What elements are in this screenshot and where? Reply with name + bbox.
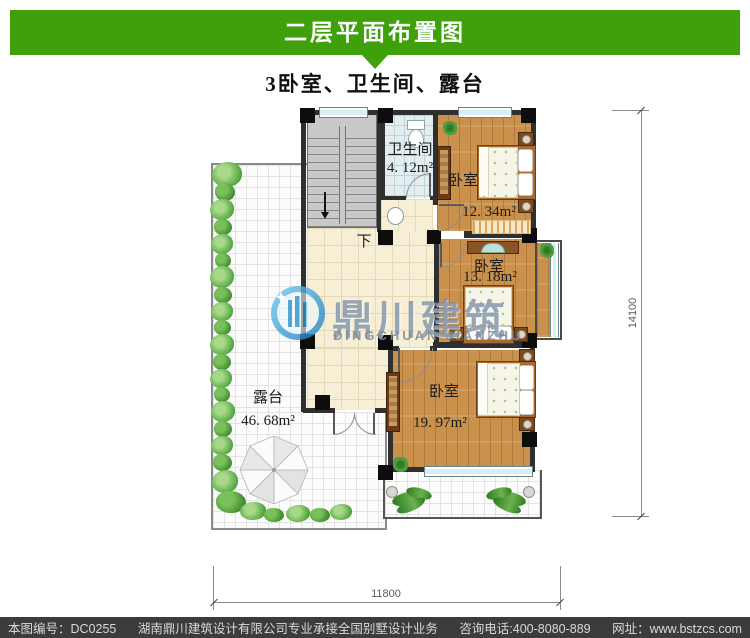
plant-icon xyxy=(310,508,330,522)
plant-icon xyxy=(210,369,232,388)
plant-icon xyxy=(330,504,352,520)
column xyxy=(427,230,441,244)
bedroom-bottom-label: 卧室 xyxy=(421,380,467,401)
dresser xyxy=(467,241,519,254)
plant-icon xyxy=(214,320,231,335)
terrace-door-leaf-right xyxy=(373,413,375,434)
column xyxy=(300,108,315,123)
stair-stringer xyxy=(339,126,346,224)
plant-icon xyxy=(210,334,234,355)
bedroom-top-label: 卧室 xyxy=(440,169,486,190)
bed-sheet xyxy=(478,363,488,414)
dimension-ext-bottom xyxy=(612,516,649,517)
nightstand xyxy=(519,417,535,431)
watermark-logo-icon xyxy=(270,285,326,341)
page-title: 二层平面布置图 xyxy=(10,10,740,55)
plant-icon xyxy=(240,502,266,520)
plant-icon xyxy=(211,401,235,422)
footer-website: 网址：www.bstzcs.com xyxy=(612,618,742,637)
nightstand xyxy=(519,349,535,362)
plant-icon xyxy=(211,302,233,321)
window-top-right xyxy=(458,107,512,118)
plant-icon xyxy=(214,219,232,235)
plant-icon xyxy=(213,354,231,370)
stair-down-label: 下 xyxy=(355,230,373,251)
terrace-area: 46. 68m² xyxy=(234,413,302,430)
column xyxy=(522,432,537,447)
page-subtitle: 3卧室、卫生间、露台 xyxy=(0,68,750,98)
plant-icon xyxy=(214,287,232,303)
bathroom-area: 4. 12m² xyxy=(384,160,436,177)
footer-drawing-no: 本图编号：DC0255 xyxy=(8,618,116,637)
plant-icon xyxy=(211,436,233,455)
dimension-bottom-value: 11800 xyxy=(350,588,422,600)
column xyxy=(378,230,393,245)
window-top-left xyxy=(319,107,368,118)
column xyxy=(315,395,330,410)
plant-icon xyxy=(393,457,408,472)
bedroom-bottom-area: 19. 97m² xyxy=(411,415,469,432)
dimension-right-value: 14100 xyxy=(627,283,639,343)
wardrobe xyxy=(386,372,400,432)
plant-icon xyxy=(214,421,232,437)
footer-bar: 本图编号：DC0255 湖南鼎川建筑设计有限公司专业承接全国别墅设计业务 咨询电… xyxy=(0,617,750,638)
plant-icon xyxy=(286,505,310,522)
plant-icon xyxy=(264,508,284,522)
rug xyxy=(472,220,531,234)
plant-icon xyxy=(213,454,232,471)
stair-direction-arrow-icon xyxy=(324,192,326,214)
column xyxy=(378,465,393,480)
watermark-name-en: DINGCHUAN JIANZHU xyxy=(333,328,523,343)
terrace-label: 露台 xyxy=(240,386,296,407)
footer-phone: 咨询电话:400-8080-889 xyxy=(459,618,590,637)
plant-icon xyxy=(212,470,238,493)
banner-arrow-icon xyxy=(362,55,388,69)
plant-icon xyxy=(443,121,457,135)
dimension-ext-right xyxy=(560,566,561,610)
wall-left xyxy=(301,110,306,412)
dimension-line-right xyxy=(641,110,642,516)
umbrella-icon xyxy=(238,436,310,504)
dimension-ext-top xyxy=(612,110,649,111)
bed-pillow xyxy=(518,149,533,172)
terrace-door-leaf-left xyxy=(333,413,335,434)
nightstand xyxy=(518,132,534,146)
door-leaf-bedroom-mid xyxy=(440,243,442,267)
bedroom-top-area: 12. 34m² xyxy=(460,204,518,221)
column xyxy=(378,108,393,123)
bed-pillow xyxy=(518,173,533,196)
bedroom-mid-area: 13. 18m² xyxy=(461,269,519,286)
window-bed3-bottom xyxy=(424,466,533,477)
column xyxy=(521,108,536,123)
floor-plan: 卫生间 4. 12m² 卧室 12. 34m² 卧室 13. 18m² 卧室 1… xyxy=(0,100,750,570)
bed-pillow xyxy=(519,365,534,390)
bathroom-label: 卫生间 xyxy=(384,138,436,159)
planter-pot-icon xyxy=(523,486,535,498)
nightstand xyxy=(518,199,534,213)
footer-company: 湖南鼎川建筑设计有限公司专业承接全国别墅设计业务 xyxy=(138,618,438,637)
title-banner: 二层平面布置图 xyxy=(10,10,740,55)
plant-icon xyxy=(211,234,233,254)
plant-icon xyxy=(540,243,554,258)
dimension-line-bottom xyxy=(213,602,561,603)
bed-pillow xyxy=(519,390,534,415)
sink-icon xyxy=(387,207,404,225)
plant-icon xyxy=(214,387,230,402)
plant-icon xyxy=(210,199,234,220)
plant-icon xyxy=(210,266,234,288)
wall-bath-bottom-a xyxy=(381,196,406,200)
stair-arrowhead-icon xyxy=(321,212,329,219)
